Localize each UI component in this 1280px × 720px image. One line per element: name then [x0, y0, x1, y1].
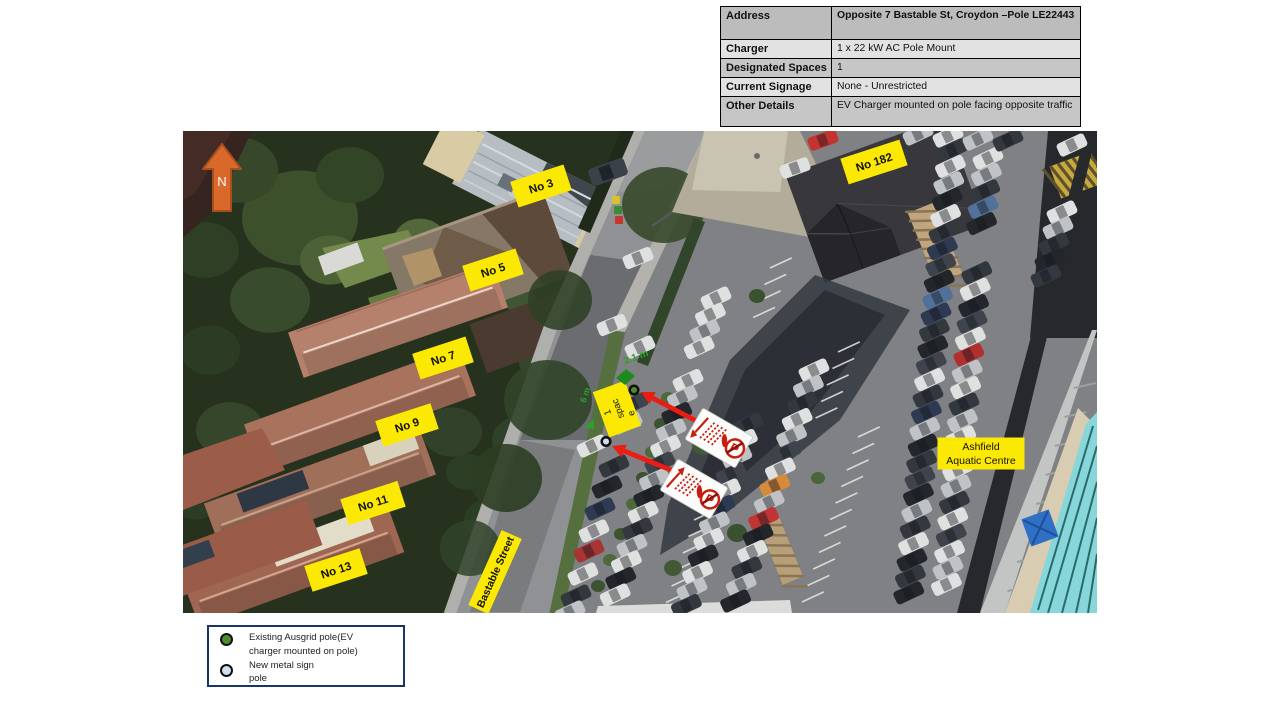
- svg-text:Ashfield: Ashfield: [962, 441, 1000, 453]
- svg-text:N: N: [217, 174, 226, 189]
- svg-text:Aquatic Centre: Aquatic Centre: [946, 455, 1016, 467]
